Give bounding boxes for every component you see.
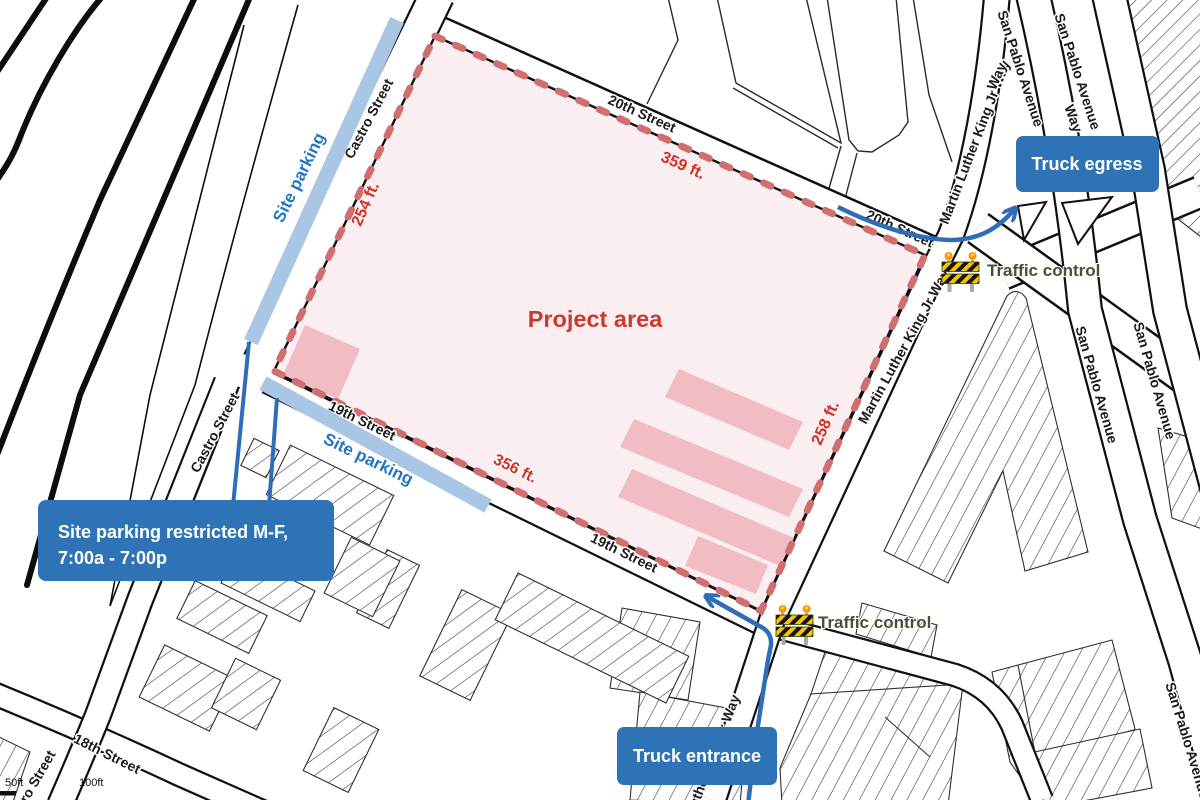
- svg-text:Traffic control: Traffic control: [818, 613, 931, 632]
- svg-text:Traffic control: Traffic control: [987, 261, 1100, 280]
- svg-text:Truck egress: Truck egress: [1031, 154, 1142, 174]
- svg-text:100ft: 100ft: [79, 777, 103, 789]
- svg-text:50ft: 50ft: [5, 777, 23, 789]
- svg-text:Site parking restricted M-F,: Site parking restricted M-F,: [58, 522, 288, 542]
- svg-text:Project area: Project area: [528, 306, 663, 332]
- svg-text:Truck entrance: Truck entrance: [633, 746, 761, 766]
- svg-text:7:00a - 7:00p: 7:00a - 7:00p: [58, 548, 167, 568]
